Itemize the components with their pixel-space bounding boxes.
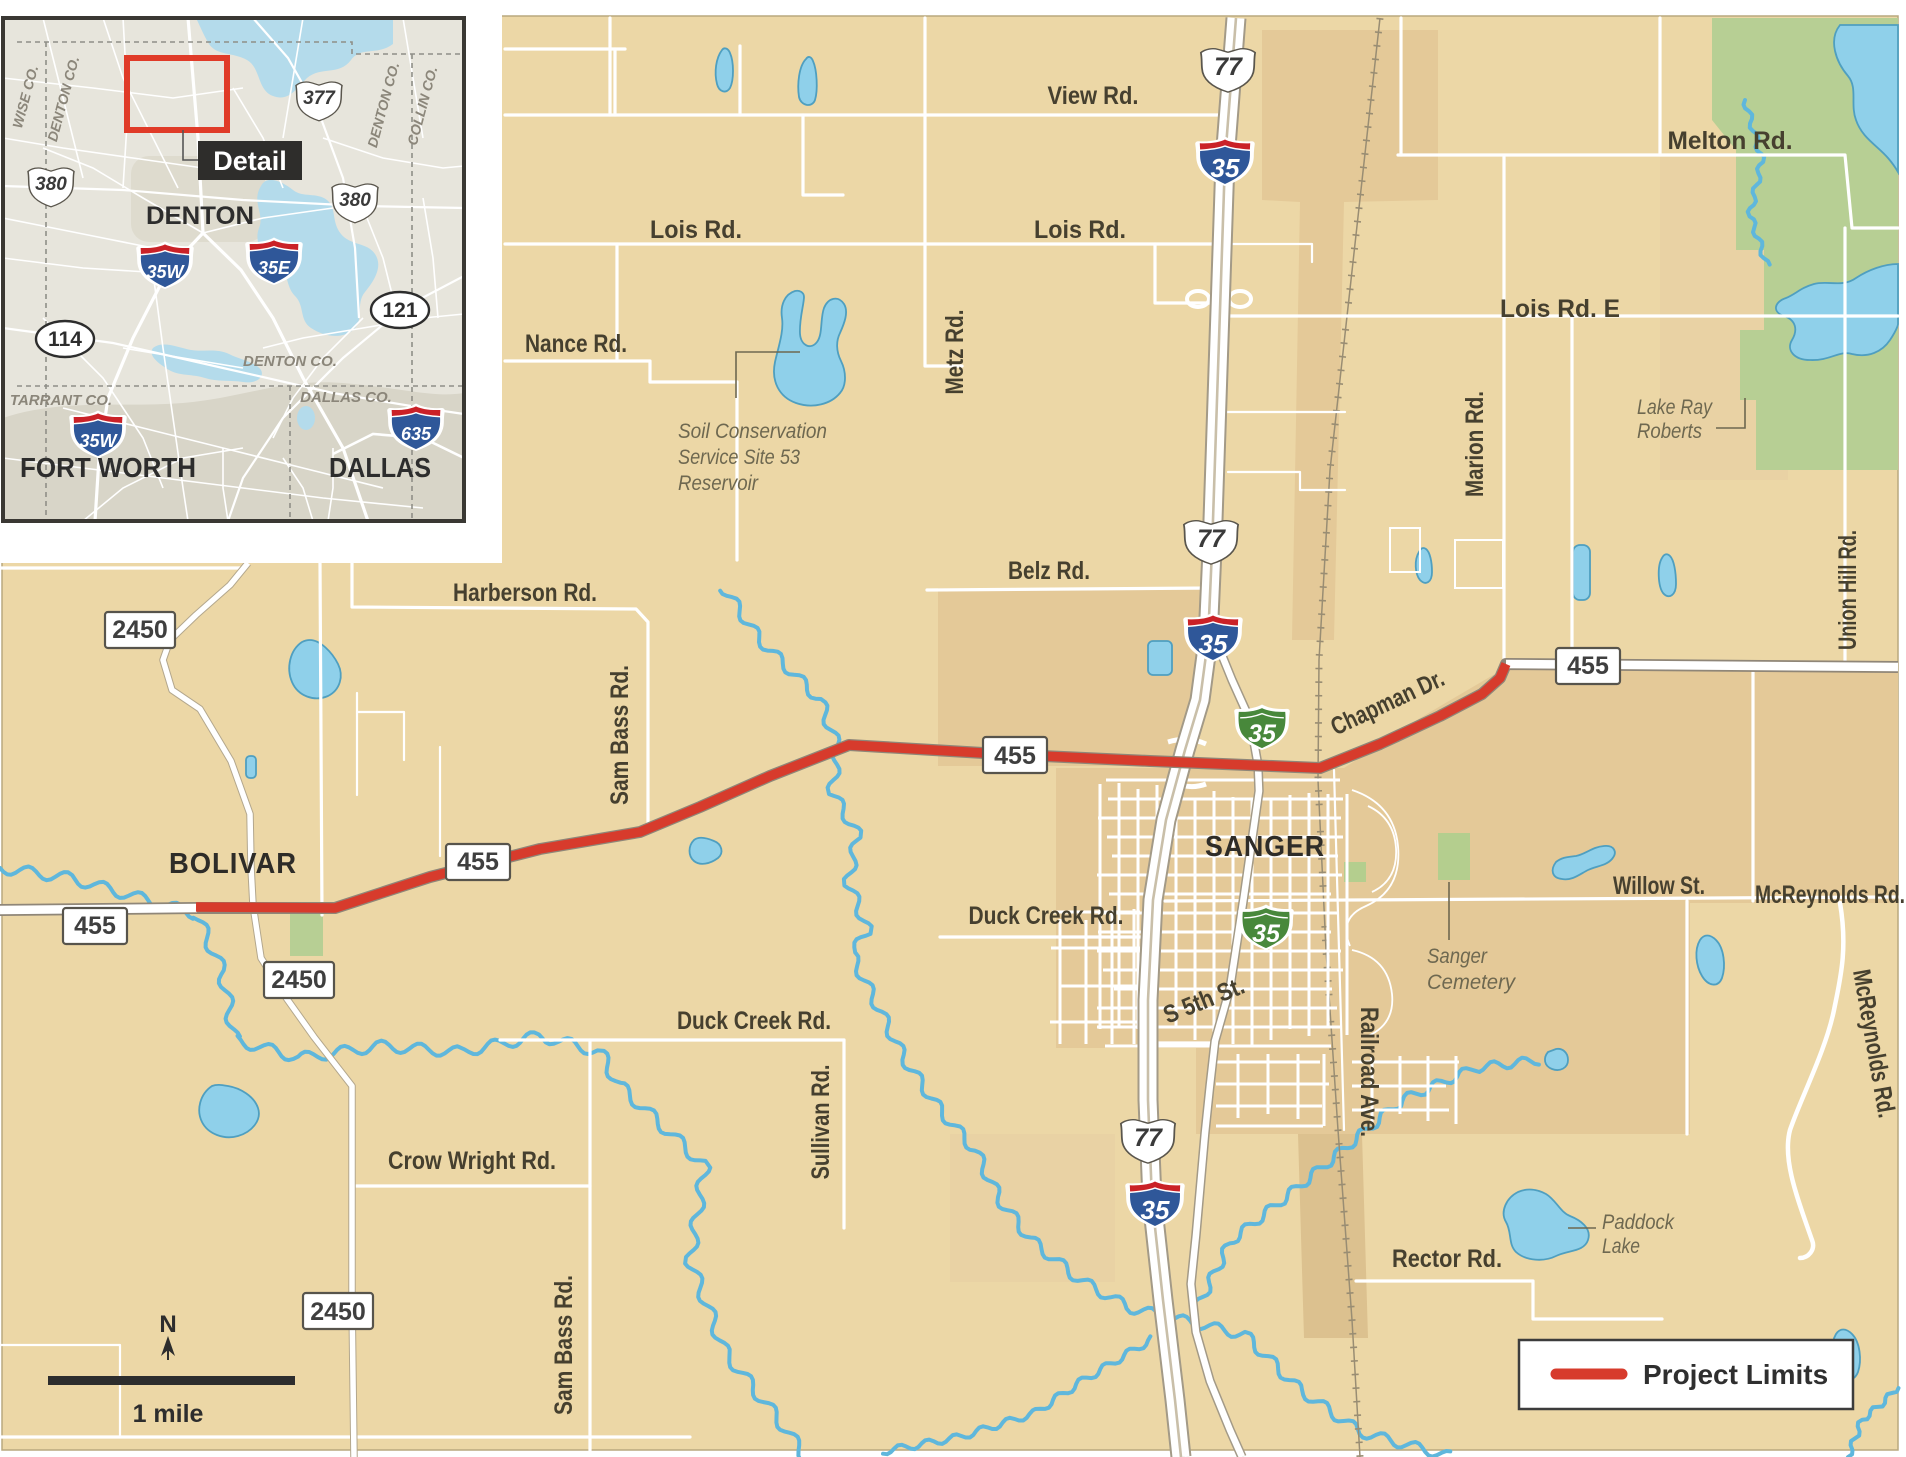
svg-text:455: 455 bbox=[994, 742, 1036, 770]
svg-text:TARRANT CO.: TARRANT CO. bbox=[10, 392, 112, 409]
svg-text:35: 35 bbox=[1248, 720, 1277, 748]
svg-text:Paddock: Paddock bbox=[1602, 1211, 1675, 1234]
svg-text:BOLIVAR: BOLIVAR bbox=[169, 848, 297, 880]
svg-text:Duck Creek Rd.: Duck Creek Rd. bbox=[677, 1007, 831, 1035]
svg-text:Rector Rd.: Rector Rd. bbox=[1392, 1245, 1502, 1273]
svg-text:2450: 2450 bbox=[310, 1298, 366, 1326]
svg-text:Cemetery: Cemetery bbox=[1427, 971, 1516, 994]
svg-text:McReynolds Rd.: McReynolds Rd. bbox=[1755, 881, 1905, 909]
svg-text:Crow Wright Rd.: Crow Wright Rd. bbox=[388, 1147, 556, 1175]
svg-text:35W: 35W bbox=[146, 262, 185, 282]
svg-text:N: N bbox=[159, 1311, 176, 1338]
svg-text:FORT WORTH: FORT WORTH bbox=[20, 452, 196, 483]
svg-text:Lake: Lake bbox=[1602, 1235, 1640, 1258]
svg-text:1 mile: 1 mile bbox=[133, 1400, 204, 1428]
svg-text:35: 35 bbox=[1252, 920, 1281, 948]
svg-text:Metz Rd.: Metz Rd. bbox=[941, 310, 969, 395]
svg-text:Sam Bass Rd.: Sam Bass Rd. bbox=[606, 665, 634, 805]
svg-text:77: 77 bbox=[1214, 53, 1243, 81]
svg-text:380: 380 bbox=[339, 190, 371, 211]
svg-text:455: 455 bbox=[1567, 652, 1609, 680]
svg-text:Sanger: Sanger bbox=[1427, 945, 1488, 968]
svg-text:View Rd.: View Rd. bbox=[1048, 82, 1139, 110]
svg-text:Nance Rd.: Nance Rd. bbox=[525, 330, 627, 358]
svg-text:DENTON CO.: DENTON CO. bbox=[243, 353, 337, 370]
svg-text:35: 35 bbox=[1211, 153, 1240, 183]
svg-text:77: 77 bbox=[1197, 525, 1226, 553]
svg-text:Harberson Rd.: Harberson Rd. bbox=[453, 579, 597, 607]
svg-text:Sullivan Rd.: Sullivan Rd. bbox=[807, 1065, 835, 1180]
svg-text:Roberts: Roberts bbox=[1637, 420, 1702, 443]
svg-text:DENTON: DENTON bbox=[146, 202, 254, 230]
svg-text:Melton Rd.: Melton Rd. bbox=[1668, 127, 1793, 155]
svg-text:2450: 2450 bbox=[112, 616, 168, 644]
svg-text:Lake Ray: Lake Ray bbox=[1637, 396, 1713, 419]
svg-text:Marion Rd.: Marion Rd. bbox=[1461, 391, 1489, 497]
svg-text:2450: 2450 bbox=[271, 966, 327, 994]
svg-text:Willow St.: Willow St. bbox=[1613, 872, 1705, 900]
svg-text:35: 35 bbox=[1141, 1195, 1170, 1225]
svg-text:377: 377 bbox=[303, 88, 336, 109]
svg-text:114: 114 bbox=[48, 328, 82, 351]
svg-text:Detail: Detail bbox=[213, 146, 287, 176]
svg-text:Sam Bass Rd.: Sam Bass Rd. bbox=[550, 1275, 578, 1415]
svg-text:455: 455 bbox=[74, 912, 116, 940]
svg-text:380: 380 bbox=[35, 174, 67, 195]
svg-text:Lois Rd.: Lois Rd. bbox=[650, 216, 742, 244]
svg-text:Project Limits: Project Limits bbox=[1643, 1359, 1828, 1390]
svg-text:SANGER: SANGER bbox=[1205, 831, 1325, 863]
svg-text:35: 35 bbox=[1199, 629, 1228, 659]
svg-text:Belz Rd.: Belz Rd. bbox=[1008, 557, 1090, 585]
svg-text:455: 455 bbox=[457, 848, 499, 876]
svg-text:35E: 35E bbox=[258, 258, 291, 278]
svg-text:DALLAS: DALLAS bbox=[329, 452, 431, 483]
svg-text:Service Site 53: Service Site 53 bbox=[678, 446, 800, 469]
svg-text:Lois Rd. E: Lois Rd. E bbox=[1500, 295, 1620, 323]
svg-text:Reservoir: Reservoir bbox=[678, 472, 759, 495]
svg-text:35W: 35W bbox=[79, 431, 118, 451]
svg-text:Lois Rd.: Lois Rd. bbox=[1034, 216, 1126, 244]
svg-text:Duck Creek Rd.: Duck Creek Rd. bbox=[969, 902, 1124, 930]
svg-text:635: 635 bbox=[401, 424, 432, 444]
svg-text:Union Hill Rd.: Union Hill Rd. bbox=[1834, 530, 1862, 650]
svg-text:121: 121 bbox=[382, 299, 417, 322]
svg-text:DALLAS CO.: DALLAS CO. bbox=[300, 389, 392, 406]
svg-text:Soil Conservation: Soil Conservation bbox=[678, 420, 827, 443]
svg-text:77: 77 bbox=[1134, 1124, 1163, 1152]
svg-text:Railroad Ave.: Railroad Ave. bbox=[1355, 1007, 1383, 1137]
